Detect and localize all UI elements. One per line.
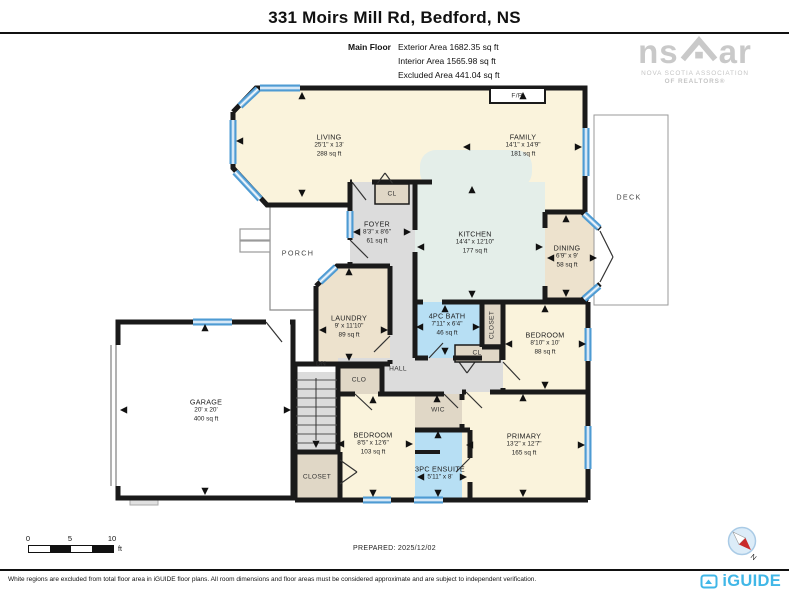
footer-disclaimer: White regions are excluded from total fl… (8, 576, 536, 583)
floor-plan-page: { "header": { "title": "331 Moirs Mill R… (0, 0, 789, 603)
scale-tick-0: 0 (26, 534, 30, 543)
wic-label: WIC (431, 407, 445, 414)
room-label-dining: DINING 6'9" x 9' 58 sq ft (554, 245, 581, 270)
cl-foyer-label: CL (387, 191, 396, 198)
cl-hall-label: CL (472, 350, 481, 357)
stairs-dn-label: DN (316, 361, 326, 368)
room-label-foyer: FOYER 8'3" x 8'6" 61 sq ft (363, 221, 391, 246)
iguide-logo: iGUIDE (700, 572, 781, 591)
compass-icon: N (723, 522, 763, 562)
fireplace-label: F/P (511, 93, 522, 100)
room-label-bedroom-3: BEDROOM 8'5" x 12'6" 103 sq ft (354, 432, 393, 457)
floor-plan-svg (0, 0, 789, 603)
compass-n-label: N (749, 553, 757, 562)
prepared-date: PREPARED: 2025/12/02 (0, 545, 789, 552)
room-label-laundry: LAUNDRY 9' x 11'10" 89 sq ft (331, 315, 367, 340)
deck-label: DECK (616, 193, 641, 202)
closet-label: CLOSET (303, 474, 331, 481)
scale-tick-10: 10 (108, 534, 116, 543)
deck-outline (594, 115, 668, 305)
room-label-4pc-bath: 4PC BATH 7'11" x 6'4" 46 sq ft (429, 313, 466, 338)
room-label-bedroom-2: BEDROOM 8'10" x 10' 88 sq ft (526, 332, 565, 357)
porch-outline (240, 205, 316, 310)
iguide-icon (700, 573, 719, 590)
scale-tick-5: 5 (68, 534, 72, 543)
footer-divider (0, 569, 789, 571)
hall-label: HALL (389, 366, 407, 373)
room-label-garage: GARAGE 20' x 20' 400 sq ft (190, 399, 222, 424)
room-label-family: FAMILY 14'1" x 14'9" 181 sq ft (505, 134, 540, 159)
room-label-kitchen: KITCHEN 14'4" x 12'10" 177 sq ft (456, 231, 495, 256)
closet-vertical-label: CLOSET (489, 311, 496, 339)
iguide-wordmark: iGUIDE (722, 572, 781, 591)
room-label-ensuite: 3PC ENSUITE 5'11" x 8' (415, 466, 465, 483)
room-label-primary: PRIMARY 13'2" x 12'7" 165 sq ft (506, 433, 541, 458)
clo-label: CLO (352, 377, 366, 384)
garage-door (111, 345, 158, 505)
porch-label: PORCH (282, 249, 314, 258)
room-label-living: LIVING 25'1" x 13' 288 sq ft (314, 134, 343, 159)
